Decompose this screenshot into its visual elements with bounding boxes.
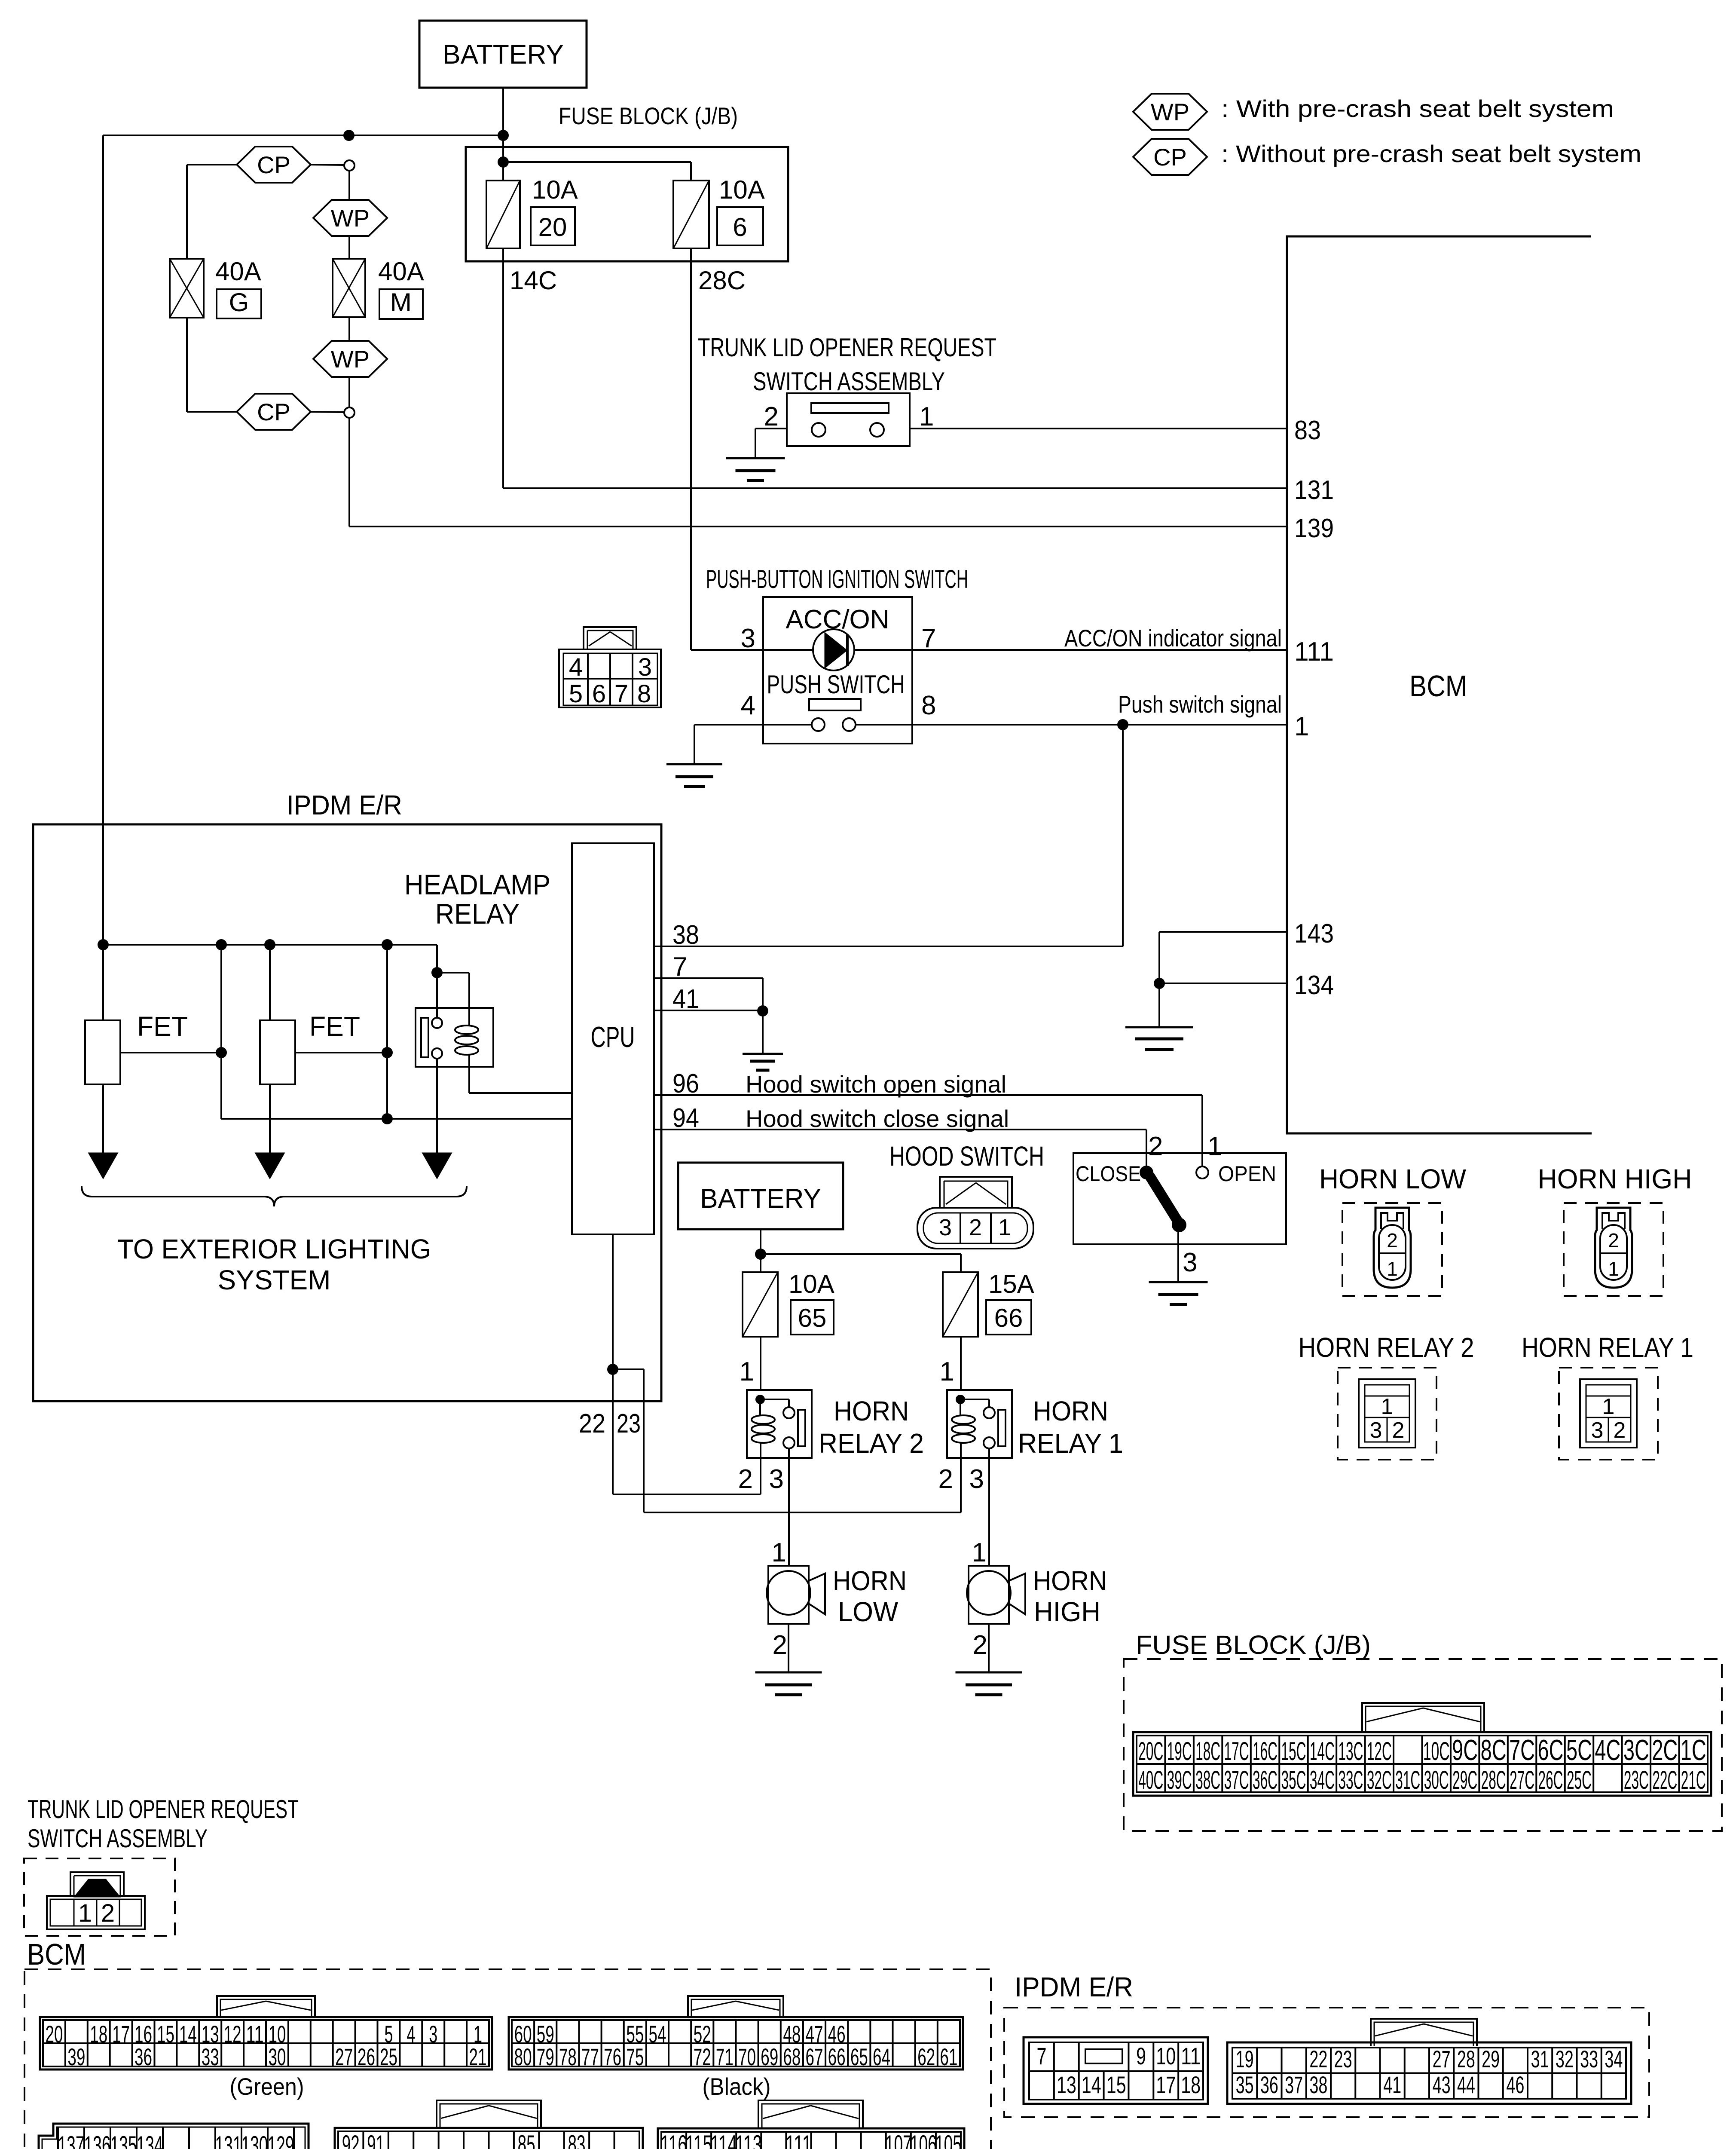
svg-text:3: 3 [1370, 1418, 1382, 1443]
svg-text:13C: 13C [1338, 1737, 1363, 1766]
svg-text:RELAY: RELAY [435, 898, 520, 930]
svg-text:65: 65 [850, 2043, 868, 2070]
svg-text:44: 44 [1457, 2071, 1475, 2098]
svg-text:(Black): (Black) [703, 2073, 771, 2100]
svg-text:131: 131 [1294, 475, 1334, 505]
svg-text:SWITCH ASSEMBLY: SWITCH ASSEMBLY [28, 1824, 208, 1853]
svg-text:2: 2 [764, 402, 779, 432]
svg-text:3: 3 [769, 1464, 784, 1494]
svg-text:RELAY 2: RELAY 2 [819, 1428, 924, 1459]
svg-text:135: 135 [110, 2131, 137, 2149]
svg-text:62: 62 [917, 2043, 935, 2070]
svg-text:3: 3 [429, 2020, 437, 2048]
svg-text:31C: 31C [1395, 1766, 1420, 1794]
svg-text:PUSH-BUTTON IGNITION SWITCH: PUSH-BUTTON IGNITION SWITCH [706, 565, 968, 594]
svg-text:41: 41 [1383, 2071, 1401, 2098]
svg-text:139: 139 [1294, 514, 1334, 543]
svg-text:ACC/ON indicator signal: ACC/ON indicator signal [1064, 624, 1282, 652]
svg-text:15A: 15A [988, 1270, 1034, 1298]
svg-text:15C: 15C [1281, 1737, 1306, 1766]
svg-text:1: 1 [78, 1899, 92, 1927]
svg-text:39C: 39C [1167, 1766, 1192, 1794]
svg-text:43: 43 [1433, 2071, 1451, 2098]
svg-text:3: 3 [969, 1464, 984, 1494]
svg-text:20: 20 [45, 2020, 63, 2048]
svg-text:30C: 30C [1424, 1766, 1449, 1794]
svg-text:130: 130 [241, 2131, 268, 2149]
svg-text:17: 17 [112, 2020, 130, 2048]
svg-text:35: 35 [1236, 2071, 1254, 2098]
svg-text:111: 111 [1294, 637, 1334, 667]
svg-text:92: 92 [342, 2130, 360, 2149]
svg-text:10A: 10A [789, 1270, 834, 1298]
svg-text:27: 27 [335, 2043, 353, 2070]
svg-text:39: 39 [67, 2043, 85, 2070]
svg-text:1: 1 [1207, 1132, 1222, 1161]
svg-text:2: 2 [969, 1215, 982, 1240]
svg-text:66: 66 [994, 1304, 1023, 1332]
svg-text:7: 7 [1037, 2042, 1047, 2069]
svg-text:18C: 18C [1195, 1737, 1220, 1766]
svg-text:134: 134 [137, 2131, 163, 2149]
svg-text:9: 9 [1136, 2042, 1146, 2069]
svg-text:: With pre-crash seat belt sys: : With pre-crash seat belt system [1221, 95, 1614, 122]
svg-text:Push switch signal: Push switch signal [1118, 691, 1282, 718]
svg-text:HORN: HORN [1033, 1565, 1107, 1596]
svg-text:CPU: CPU [591, 1021, 635, 1053]
svg-text:64: 64 [873, 2043, 890, 2070]
svg-text:28C: 28C [698, 266, 746, 295]
svg-text:TRUNK LID OPENER REQUEST: TRUNK LID OPENER REQUEST [698, 333, 996, 362]
svg-text:19C: 19C [1167, 1737, 1192, 1766]
svg-text:HORN: HORN [1033, 1396, 1108, 1427]
svg-text:SYSTEM: SYSTEM [218, 1264, 331, 1295]
svg-text:46: 46 [1506, 2071, 1524, 2098]
svg-text:1: 1 [1602, 1394, 1615, 1419]
svg-text:22C: 22C [1652, 1766, 1677, 1794]
svg-text:23: 23 [617, 1409, 641, 1439]
svg-text:115: 115 [685, 2130, 712, 2149]
svg-text:G: G [229, 288, 249, 317]
svg-text:76: 76 [604, 2043, 621, 2070]
svg-text:96: 96 [672, 1069, 699, 1099]
svg-text:1: 1 [940, 1357, 954, 1387]
svg-text:1: 1 [1381, 1394, 1394, 1419]
svg-text:33: 33 [1580, 2045, 1598, 2072]
svg-text:SWITCH ASSEMBLY: SWITCH ASSEMBLY [753, 367, 945, 396]
svg-text:31: 31 [1531, 2045, 1549, 2072]
svg-text:129: 129 [268, 2131, 294, 2149]
svg-text:11: 11 [1181, 2042, 1201, 2069]
svg-text:10A: 10A [532, 175, 578, 204]
svg-text:8: 8 [921, 691, 936, 720]
svg-text:IPDM E/R: IPDM E/R [1015, 1971, 1133, 2002]
svg-text:1: 1 [919, 402, 934, 432]
svg-text:16C: 16C [1253, 1737, 1278, 1766]
svg-text:3: 3 [939, 1215, 952, 1240]
svg-text:54: 54 [648, 2020, 666, 2048]
svg-text:40C: 40C [1138, 1766, 1163, 1794]
svg-text:8C: 8C [1481, 1734, 1507, 1766]
svg-text:4: 4 [406, 2020, 415, 2048]
svg-text:BCM: BCM [1409, 669, 1467, 703]
svg-text:Hood switch close signal: Hood switch close signal [746, 1105, 1009, 1132]
svg-text:36C: 36C [1253, 1766, 1278, 1794]
svg-text:3: 3 [1591, 1418, 1604, 1443]
svg-text:32: 32 [1556, 2045, 1574, 2072]
svg-text:27C: 27C [1510, 1766, 1534, 1794]
svg-text:75: 75 [626, 2043, 644, 2070]
svg-text:38: 38 [1309, 2071, 1327, 2098]
svg-text:1: 1 [998, 1215, 1011, 1240]
svg-text:38: 38 [672, 920, 699, 950]
svg-text:40A: 40A [215, 257, 261, 286]
svg-text:4: 4 [569, 653, 583, 681]
svg-text:5C: 5C [1566, 1734, 1592, 1766]
svg-text:13: 13 [1057, 2071, 1076, 2098]
svg-text:30: 30 [268, 2043, 286, 2070]
svg-text:BCM: BCM [27, 1938, 86, 1971]
svg-text:71: 71 [716, 2043, 734, 2070]
svg-text:28: 28 [1457, 2045, 1475, 2072]
svg-text:2: 2 [1148, 1132, 1163, 1161]
svg-text:7: 7 [672, 952, 687, 982]
svg-text:1: 1 [1294, 712, 1309, 741]
svg-text:26C: 26C [1538, 1766, 1563, 1794]
svg-text:136: 136 [84, 2131, 111, 2149]
svg-text:LOW: LOW [838, 1596, 899, 1627]
svg-text:29: 29 [1482, 2045, 1500, 2072]
svg-text:WP: WP [331, 346, 370, 373]
svg-text:CLOSE: CLOSE [1076, 1162, 1141, 1186]
svg-text:35C: 35C [1281, 1766, 1306, 1794]
svg-text:2: 2 [938, 1464, 953, 1494]
svg-text:106: 106 [910, 2130, 937, 2149]
svg-text:9C: 9C [1452, 1734, 1478, 1766]
svg-text:6C: 6C [1538, 1734, 1564, 1766]
svg-text:21: 21 [469, 2043, 487, 2070]
svg-text:67: 67 [806, 2043, 823, 2070]
svg-text:10: 10 [1156, 2042, 1176, 2069]
svg-text:33: 33 [202, 2043, 219, 2070]
svg-text:20: 20 [538, 213, 567, 242]
svg-text:1: 1 [772, 1538, 786, 1567]
svg-text:21C: 21C [1681, 1766, 1706, 1794]
svg-text:3C: 3C [1623, 1734, 1649, 1766]
svg-text:HORN RELAY 1: HORN RELAY 1 [1522, 1332, 1693, 1363]
svg-text:2: 2 [738, 1464, 753, 1494]
svg-text:HORN: HORN [834, 1396, 909, 1427]
svg-text:2: 2 [1608, 1229, 1619, 1252]
svg-text:OPEN: OPEN [1218, 1162, 1276, 1186]
svg-text:2: 2 [1387, 1229, 1398, 1252]
svg-text:7: 7 [921, 624, 936, 653]
svg-text:116: 116 [660, 2130, 687, 2149]
svg-text:CP: CP [1153, 144, 1187, 171]
svg-text:83: 83 [1294, 416, 1321, 445]
svg-text:68: 68 [783, 2043, 801, 2070]
svg-text:14C: 14C [510, 266, 557, 295]
svg-text:23: 23 [1334, 2045, 1352, 2072]
svg-text:HORN HIGH: HORN HIGH [1538, 1163, 1692, 1194]
svg-text:66: 66 [828, 2043, 846, 2070]
svg-text:BATTERY: BATTERY [700, 1184, 821, 1214]
svg-text:107: 107 [885, 2130, 912, 2149]
svg-text:BATTERY: BATTERY [443, 40, 564, 70]
svg-text:6: 6 [733, 213, 747, 242]
svg-text:83: 83 [568, 2130, 585, 2149]
svg-text:27: 27 [1433, 2045, 1451, 2072]
svg-text:80: 80 [514, 2043, 532, 2070]
svg-text:85: 85 [518, 2130, 535, 2149]
svg-text:28C: 28C [1481, 1766, 1506, 1794]
svg-text:40A: 40A [378, 257, 424, 286]
svg-text:2: 2 [1392, 1418, 1405, 1443]
svg-text:FUSE BLOCK (J/B): FUSE BLOCK (J/B) [559, 102, 738, 129]
svg-text:TRUNK LID OPENER REQUEST: TRUNK LID OPENER REQUEST [28, 1795, 299, 1824]
svg-text:2: 2 [773, 1630, 787, 1660]
svg-text:6: 6 [592, 680, 606, 708]
svg-text:94: 94 [672, 1103, 699, 1133]
svg-text:22: 22 [1309, 2045, 1327, 2072]
svg-text:2: 2 [1614, 1418, 1626, 1443]
svg-text:3: 3 [741, 624, 755, 653]
svg-text:72: 72 [694, 2043, 711, 2070]
svg-text:15: 15 [157, 2020, 174, 2048]
svg-text:26: 26 [358, 2043, 375, 2070]
svg-text:37: 37 [1285, 2071, 1303, 2098]
svg-text:65: 65 [798, 1304, 827, 1332]
svg-text:11: 11 [246, 2020, 264, 2048]
svg-text:RELAY 1: RELAY 1 [1018, 1428, 1123, 1459]
svg-text:23C: 23C [1624, 1766, 1649, 1794]
svg-text:14C: 14C [1310, 1737, 1335, 1766]
svg-text:1: 1 [740, 1357, 754, 1387]
svg-text:114: 114 [710, 2130, 737, 2149]
svg-text:32C: 32C [1367, 1766, 1392, 1794]
svg-text:FET: FET [137, 1011, 188, 1042]
svg-text:15: 15 [1106, 2071, 1126, 2098]
svg-text:HORN: HORN [833, 1565, 907, 1596]
svg-text:4: 4 [741, 691, 755, 720]
svg-text:IPDM E/R: IPDM E/R [287, 790, 402, 820]
svg-text:22: 22 [579, 1409, 605, 1439]
svg-text:131: 131 [215, 2131, 242, 2149]
svg-text:134: 134 [1294, 970, 1334, 1000]
svg-text:HEADLAMP: HEADLAMP [404, 869, 550, 900]
svg-text:7C: 7C [1509, 1734, 1535, 1766]
svg-text:69: 69 [761, 2043, 778, 2070]
svg-text:25C: 25C [1567, 1766, 1592, 1794]
svg-text:14: 14 [1082, 2071, 1101, 2098]
svg-text:5: 5 [569, 680, 583, 708]
svg-text:17C: 17C [1224, 1737, 1249, 1766]
svg-text:18: 18 [90, 2020, 107, 2048]
svg-text:WP: WP [1151, 98, 1189, 126]
svg-text:37C: 37C [1224, 1766, 1249, 1794]
svg-text:29C: 29C [1452, 1766, 1477, 1794]
svg-text:70: 70 [738, 2043, 756, 2070]
svg-text:(Green): (Green) [230, 2073, 304, 2100]
svg-text:12: 12 [224, 2020, 241, 2048]
svg-text:3: 3 [638, 653, 652, 681]
svg-text:38C: 38C [1195, 1766, 1220, 1794]
svg-text:HIGH: HIGH [1034, 1596, 1100, 1627]
svg-text:79: 79 [537, 2043, 554, 2070]
svg-text:8: 8 [637, 680, 651, 708]
svg-text:WP: WP [331, 205, 370, 232]
svg-text:CP: CP [257, 151, 290, 178]
svg-text:1: 1 [972, 1538, 987, 1567]
svg-text:143: 143 [1294, 919, 1334, 949]
svg-text:33C: 33C [1338, 1766, 1363, 1794]
svg-text:77: 77 [581, 2043, 599, 2070]
svg-text:36: 36 [134, 2043, 152, 2070]
svg-text:12C: 12C [1367, 1737, 1392, 1766]
svg-text:FUSE BLOCK (J/B): FUSE BLOCK (J/B) [1136, 1630, 1371, 1659]
svg-text:M: M [390, 288, 412, 317]
svg-text:78: 78 [559, 2043, 577, 2070]
svg-text:3: 3 [1183, 1248, 1197, 1277]
svg-text:1: 1 [1387, 1258, 1398, 1280]
svg-text:1: 1 [1608, 1258, 1619, 1280]
svg-text:2: 2 [101, 1899, 115, 1927]
svg-text:2: 2 [973, 1630, 987, 1660]
svg-text:HORN RELAY 2: HORN RELAY 2 [1299, 1332, 1474, 1363]
svg-text:105: 105 [935, 2130, 962, 2149]
svg-text:25: 25 [380, 2043, 397, 2070]
svg-text:34C: 34C [1310, 1766, 1335, 1794]
svg-text:FET: FET [309, 1011, 360, 1042]
svg-text:91: 91 [367, 2130, 385, 2149]
svg-text:HOOD SWITCH: HOOD SWITCH [889, 1141, 1044, 1172]
svg-text:TO EXTERIOR LIGHTING: TO EXTERIOR LIGHTING [117, 1234, 431, 1264]
svg-text:2C: 2C [1652, 1734, 1678, 1766]
svg-text:CP: CP [257, 398, 290, 426]
svg-text:Hood switch open signal: Hood switch open signal [746, 1071, 1006, 1098]
svg-text:34: 34 [1605, 2045, 1623, 2072]
svg-text:10A: 10A [719, 175, 765, 204]
svg-text:4C: 4C [1595, 1734, 1620, 1766]
svg-text:17: 17 [1156, 2071, 1176, 2098]
svg-text:137: 137 [58, 2131, 85, 2149]
svg-text:14: 14 [179, 2020, 197, 2048]
svg-text:61: 61 [940, 2043, 957, 2070]
svg-text:36: 36 [1260, 2071, 1278, 2098]
svg-text:20C: 20C [1138, 1737, 1163, 1766]
svg-text:113: 113 [735, 2130, 762, 2149]
svg-text:1C: 1C [1681, 1734, 1706, 1766]
svg-text:111: 111 [785, 2130, 812, 2149]
svg-text:19: 19 [1236, 2045, 1254, 2072]
svg-text:HORN LOW: HORN LOW [1319, 1163, 1467, 1194]
svg-text:7: 7 [614, 680, 628, 708]
svg-text:41: 41 [672, 984, 699, 1014]
svg-text:10C: 10C [1423, 1737, 1450, 1766]
svg-text:18: 18 [1181, 2071, 1201, 2098]
svg-text:: Without pre-crash seat belt: : Without pre-crash seat belt system [1221, 140, 1641, 167]
svg-text:PUSH SWITCH: PUSH SWITCH [767, 670, 905, 699]
